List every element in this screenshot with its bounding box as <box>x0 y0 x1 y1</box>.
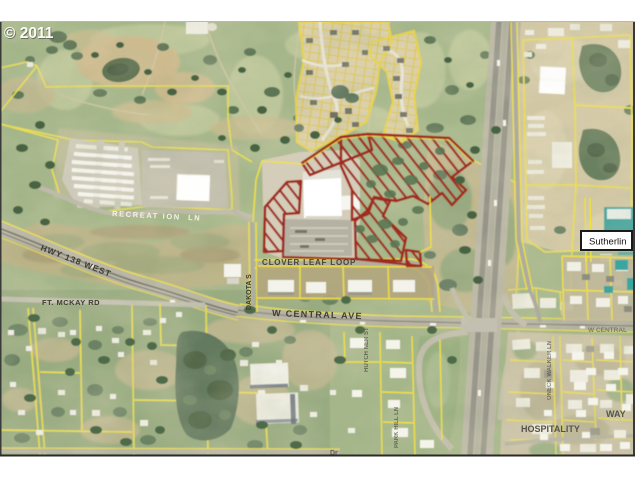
svg-text:FT. MCKAY RD: FT. MCKAY RD <box>42 298 100 307</box>
svg-text:Sutherlin: Sutherlin <box>589 237 627 248</box>
svg-text:WAY: WAY <box>606 409 626 419</box>
svg-text:DAKOTA S: DAKOTA S <box>246 274 253 310</box>
svg-text:HUTCH NER ST: HUTCH NER ST <box>364 327 370 372</box>
svg-text:HOSPITALITY: HOSPITALITY <box>521 424 580 434</box>
svg-text:CLOVER LEAF LOOP: CLOVER LEAF LOOP <box>262 258 356 267</box>
svg-text:W CENTRAL: W CENTRAL <box>588 327 627 334</box>
svg-text:© 2011: © 2011 <box>4 25 54 42</box>
svg-text:PARK HILL LN: PARK HILL LN <box>394 407 400 448</box>
svg-text:ONECK WALKER LN: ONECK WALKER LN <box>547 341 553 400</box>
